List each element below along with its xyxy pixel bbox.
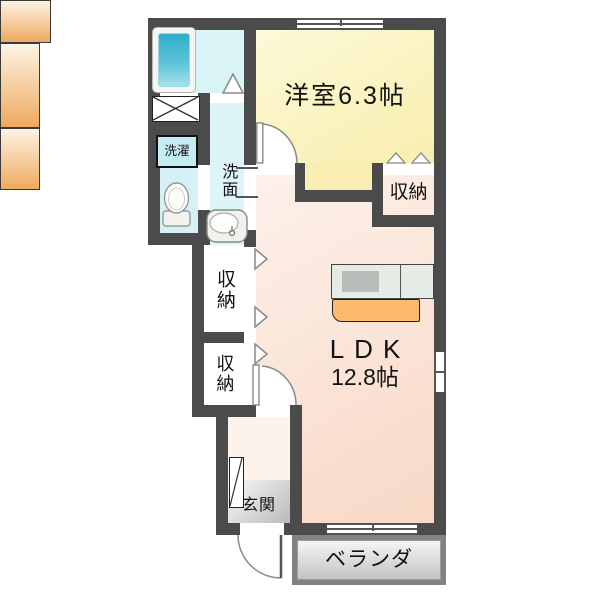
ldk-size-label: 12.8帖 <box>295 365 435 390</box>
window-veranda <box>327 523 417 535</box>
washing-machine-space: 洗濯 <box>156 135 198 168</box>
window-center-tick <box>372 523 374 531</box>
closet-lower-label: 収納 <box>204 346 244 402</box>
folding-door-icon <box>255 343 269 365</box>
folding-door-icon <box>255 248 269 270</box>
stove-icon <box>342 271 379 292</box>
entrance-label: 玄関 <box>228 497 290 515</box>
bathtub-icon <box>152 27 196 93</box>
wall-closet-left <box>192 233 204 417</box>
room-western-extension <box>305 163 372 190</box>
bath-folding-door-icon <box>222 72 244 94</box>
toilet-door-opening <box>198 165 210 210</box>
window-center-tick <box>340 18 342 26</box>
wall-west-ldk <box>295 190 383 202</box>
kitchen-island-counter <box>332 299 420 322</box>
washroom-label: 洗面 <box>210 150 244 212</box>
closet-lower <box>0 128 40 190</box>
closet-upper-label: 収納 <box>204 252 244 328</box>
door-swing-hall <box>252 363 298 407</box>
washbasin-icon <box>206 209 248 243</box>
window-ldk-right <box>434 352 446 392</box>
closetR-folding-door-icon <box>386 152 434 164</box>
crossed-box-icon <box>152 96 200 122</box>
wall-entrance-right <box>290 405 302 535</box>
laundry-label: 洗濯 <box>164 144 189 158</box>
closet-right-label: 収納 <box>383 181 434 205</box>
veranda: ベランダ <box>292 535 446 585</box>
ldk-label: LDK <box>295 336 435 364</box>
closetR-door-strip <box>383 163 434 172</box>
counter-divider <box>400 265 401 298</box>
kitchen-counter <box>331 264 434 299</box>
bathtub-water <box>158 33 190 87</box>
door-swing-entrance <box>236 533 284 581</box>
western-room-label: 洋室6.3帖 <box>255 82 435 110</box>
wall-right <box>434 18 446 535</box>
bath-door-opening <box>210 93 244 103</box>
floorplan-canvas: 洗濯 ベランダ 洋室6.3帖 LDK 12.8帖 収納 収納 収納 洗面 玄関 <box>0 0 600 600</box>
window-top <box>297 18 383 30</box>
door-swing-western <box>256 121 300 165</box>
wall-closetR-bottom <box>372 215 434 227</box>
veranda-label: ベランダ <box>325 548 413 572</box>
wall-entrance-left <box>216 405 228 535</box>
closet-upper <box>0 43 40 128</box>
toilet-icon <box>158 178 196 232</box>
folding-door-icon <box>255 306 269 328</box>
window-sash-line <box>436 371 444 373</box>
closet-right <box>0 0 51 43</box>
veranda-floor: ベランダ <box>297 540 441 580</box>
